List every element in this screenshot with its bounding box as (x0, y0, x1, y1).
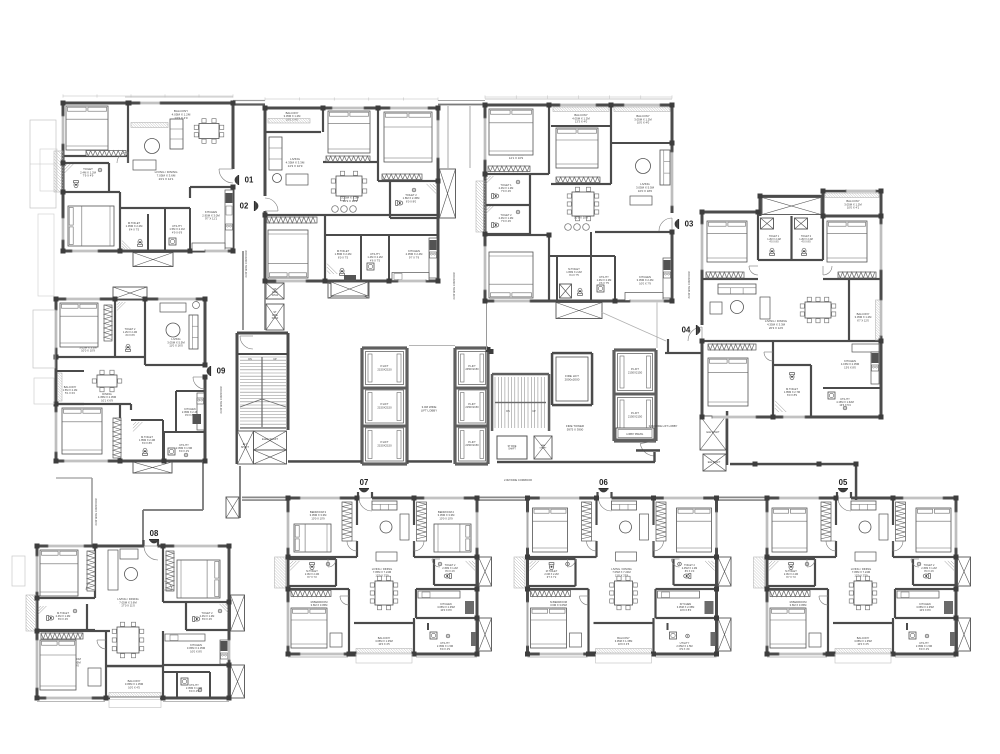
svg-text:2.0M WIDE CORRIDOR: 2.0M WIDE CORRIDOR (504, 478, 532, 482)
svg-text:3.0M WIDELIFT LOBBY: 3.0M WIDELIFT LOBBY (421, 405, 437, 412)
svg-text:03: 03 (685, 220, 694, 229)
svg-text:2.0M WIDE CORRIDOR: 2.0M WIDE CORRIDOR (245, 250, 248, 277)
svg-text:04: 04 (682, 326, 691, 335)
svg-text:ST FIRESHAFT: ST FIRESHAFT (508, 446, 517, 451)
svg-text:08: 08 (150, 529, 159, 538)
svg-text:02: 02 (240, 202, 249, 211)
svg-text:FIRE TOWER5975 X 3900: FIRE TOWER5975 X 3900 (566, 424, 584, 431)
svg-text:07: 07 (360, 478, 369, 487)
svg-text:05: 05 (839, 478, 848, 487)
svg-text:09: 09 (217, 367, 226, 376)
svg-text:2.0M WIDE CORRIDOR: 2.0M WIDE CORRIDOR (220, 386, 223, 413)
svg-text:UP: UP (273, 358, 277, 361)
svg-text:01: 01 (245, 176, 254, 185)
svg-text:3.0M WIDE LIFT LOBBY: 3.0M WIDE LIFT LOBBY (649, 424, 678, 428)
svg-text:2.0M WIDE CORRIDOR: 2.0M WIDE CORRIDOR (453, 272, 456, 299)
svg-text:BEDROOM 33.05M X 3.3M10'0 X 10: BEDROOM 33.05M X 3.3M10'0 X 10'9 (310, 510, 327, 520)
svg-text:ELE SHAFT: ELE SHAFT (706, 431, 720, 434)
svg-text:ELEC SHAFT: ELEC SHAFT (262, 437, 278, 441)
svg-text:2.0M WIDE CORRIDOR: 2.0M WIDE CORRIDOR (95, 498, 98, 525)
svg-text:BEDROOM 23.05M X 3.3M10'0 X 10: BEDROOM 23.05M X 3.3M10'0 X 10'9 (438, 510, 455, 520)
svg-text:UP: UP (532, 410, 536, 413)
svg-text:DN: DN (248, 358, 252, 361)
svg-text:3.0M WIDE CORRIDOR: 3.0M WIDE CORRIDOR (688, 271, 691, 298)
svg-text:LOBBY PRESS.: LOBBY PRESS. (626, 433, 644, 436)
svg-text:DN: DN (506, 410, 510, 413)
svg-text:ELE SHAFT: ELE SHAFT (708, 461, 721, 464)
svg-text:FIRE LIFT2000x2000: FIRE LIFT2000x2000 (565, 374, 580, 382)
svg-text:06: 06 (599, 478, 608, 487)
